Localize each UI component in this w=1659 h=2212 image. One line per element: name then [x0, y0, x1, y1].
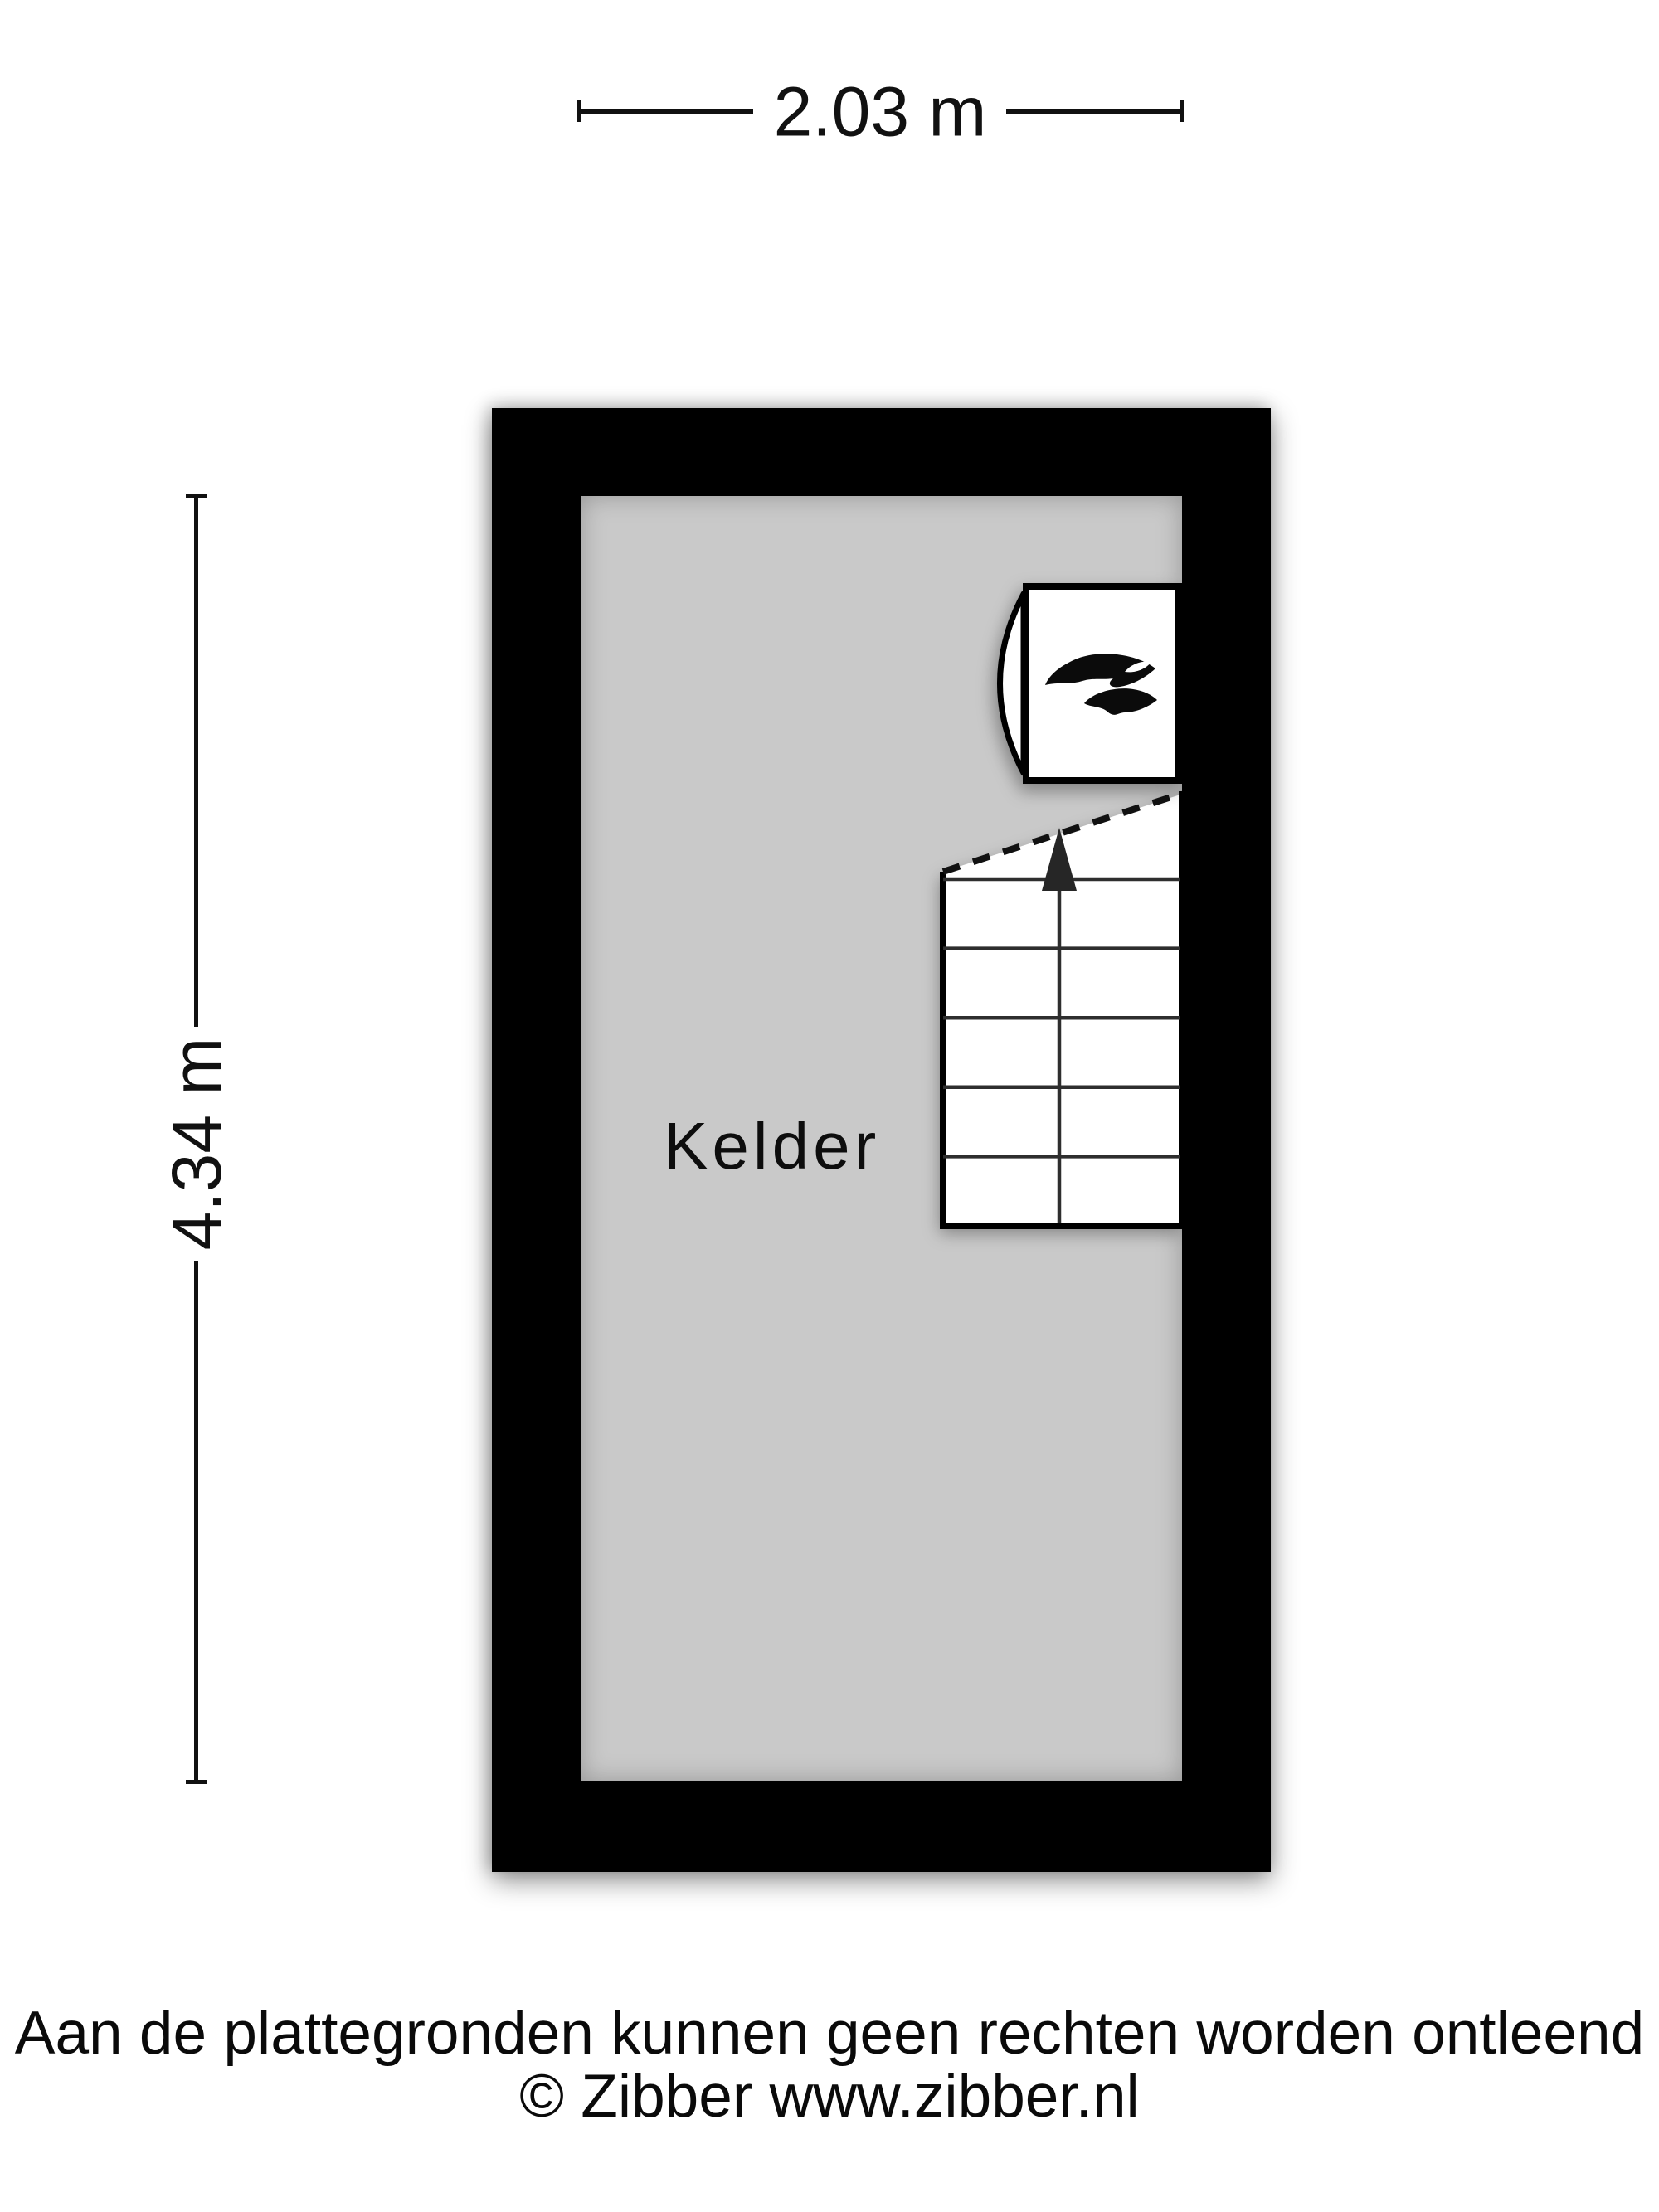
room-kelder: Kelder [581, 496, 1182, 1781]
room-label: Kelder [664, 1113, 880, 1179]
dimension-height-line-top [194, 496, 198, 1027]
disclaimer-text: Aan de plattegronden kunnen geen rechten… [0, 2002, 1659, 2065]
outer-walls: Kelder [492, 408, 1271, 1872]
dimension-width-label: 2.03 m [766, 76, 995, 146]
dimension-width-line-right [1006, 109, 1182, 114]
dimension-width-tick-right [1180, 100, 1184, 122]
copyright-text: © Zibber www.zibber.nl [0, 2065, 1659, 2128]
floorplan-page: 2.03 m 4.34 m [0, 0, 1659, 2212]
boiler-front-curve [1000, 594, 1024, 773]
boiler [1000, 586, 1180, 780]
dimension-height-line-bottom [194, 1261, 198, 1782]
dimension-width-line-left [580, 109, 753, 114]
dimension-height-tick-bottom [186, 1780, 207, 1784]
dimension-height-label: 4.34 m [162, 1029, 231, 1259]
footer: Aan de plattegronden kunnen geen rechten… [0, 2002, 1659, 2128]
